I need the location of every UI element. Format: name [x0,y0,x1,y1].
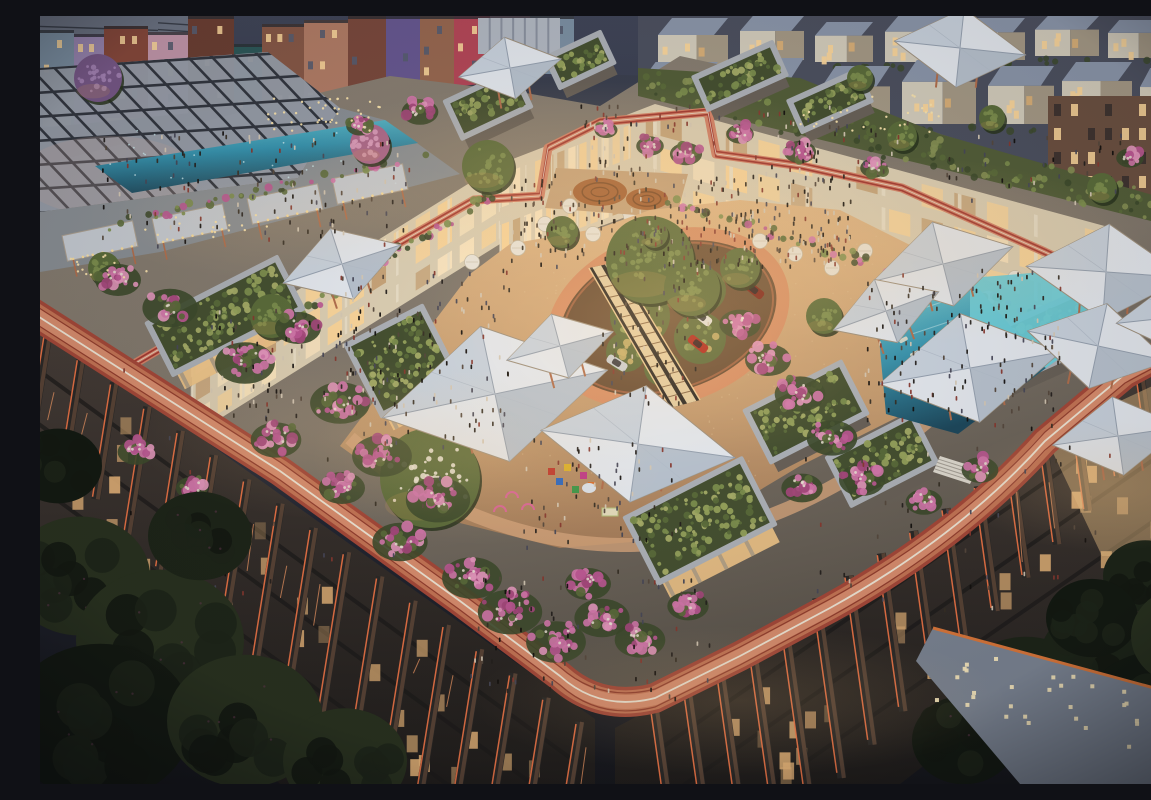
aerial-rendering-figure [40,16,1151,784]
vignette-overlay [40,16,1151,784]
rendering-canvas [40,16,1151,784]
